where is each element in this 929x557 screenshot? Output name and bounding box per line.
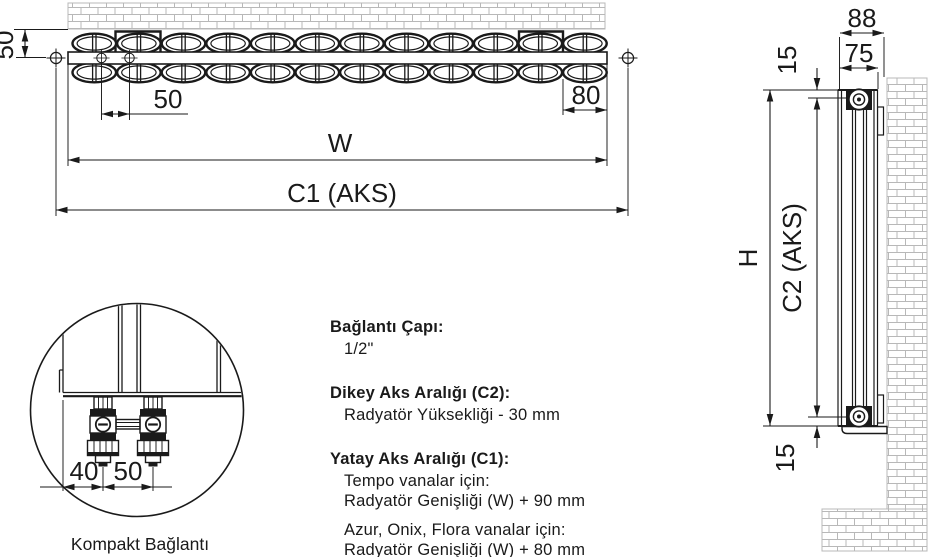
brick-wall-top [68,3,605,29]
top-view: 50 50 80 W C1 (AKS) [0,3,638,216]
valve-body-top-band [140,409,166,416]
valve-tip-nub [149,463,158,467]
dim-label-depth-75: 75 [845,38,874,68]
detail-view-compact-connection: 40 50 Kompakt Bağlantı [31,300,245,554]
tube-row-upper [73,34,607,54]
dim-label-height-h: H [733,249,763,268]
dim-label-port-spacing-50: 50 [154,84,183,114]
valve-body-top-band [90,409,116,416]
brick-wall-side [887,78,927,509]
dim-label-width-w: W [328,128,353,158]
axis-crosshair-left [47,49,66,68]
detail-caption: Kompakt Bağlantı [71,534,209,554]
brick-floor [822,509,927,551]
valve-body-bottom-band [140,433,166,441]
spec-other-value: Radyatör Genişliği (W) + 80 mm [344,540,630,557]
valve-body-bottom-band [90,433,116,441]
dim-label-50: 50 [114,456,143,486]
spec-other-label: Azur, Onix, Flora vanalar için: [344,520,630,540]
pipe-port-bottom-center [857,415,861,419]
wall-bracket-bottom [878,395,884,423]
valve-tip-nub [99,463,108,467]
bottom-foot-bracket [842,427,887,434]
radiator-technical-drawing: 50 50 80 W C1 (AKS) [0,0,929,557]
pipe-port-top-center [857,98,861,102]
spec-vertical-axis: Dikey Aks Aralığı (C2): Radyatör Yüksekl… [330,383,630,425]
spec-heading-connection: Bağlantı Çapı: [330,317,630,337]
axis-crosshair-right [619,49,638,68]
spec-value-vertical-axis: Radyatör Yüksekliği - 30 mm [344,405,630,425]
spec-horizontal-axis: Yatay Aks Aralığı (C1): Tempo vanalar iç… [330,449,630,557]
tube-section-lines [853,108,867,408]
spec-connection-diameter: Bağlantı Çapı: 1/2" [330,317,630,359]
collector-bar [68,52,607,64]
dim-label-end-offset-80: 80 [572,80,601,110]
spec-heading-vertical-axis: Dikey Aks Aralığı (C2): [330,383,630,403]
dim-label-depth-88: 88 [848,3,877,33]
dim-label-40: 40 [70,456,99,486]
front-panel [838,90,842,426]
dim-label-top-15: 15 [772,46,802,75]
spec-notes: Bağlantı Çapı: 1/2" Dikey Aks Aralığı (C… [330,317,630,557]
dim-label-c2: C2 (AKS) [777,203,807,313]
side-view: 88 75 H C2 (AKS) 15 15 [733,3,927,551]
wall-bracket-top [878,107,884,135]
spec-tempo-label: Tempo vanalar için: [344,471,630,491]
dim-label-wall-offset-50: 50 [0,31,19,60]
spec-tempo-value: Radyatör Genişliği (W) + 90 mm [344,491,630,511]
tube-row-lower [73,63,607,83]
dim-label-bottom-15: 15 [770,444,800,473]
radiator-caps [838,90,878,426]
back-panel [874,90,878,426]
spec-heading-horizontal-axis: Yatay Aks Aralığı (C1): [330,449,630,469]
dim-label-c1: C1 (AKS) [287,178,397,208]
spec-value-connection: 1/2" [344,339,630,359]
